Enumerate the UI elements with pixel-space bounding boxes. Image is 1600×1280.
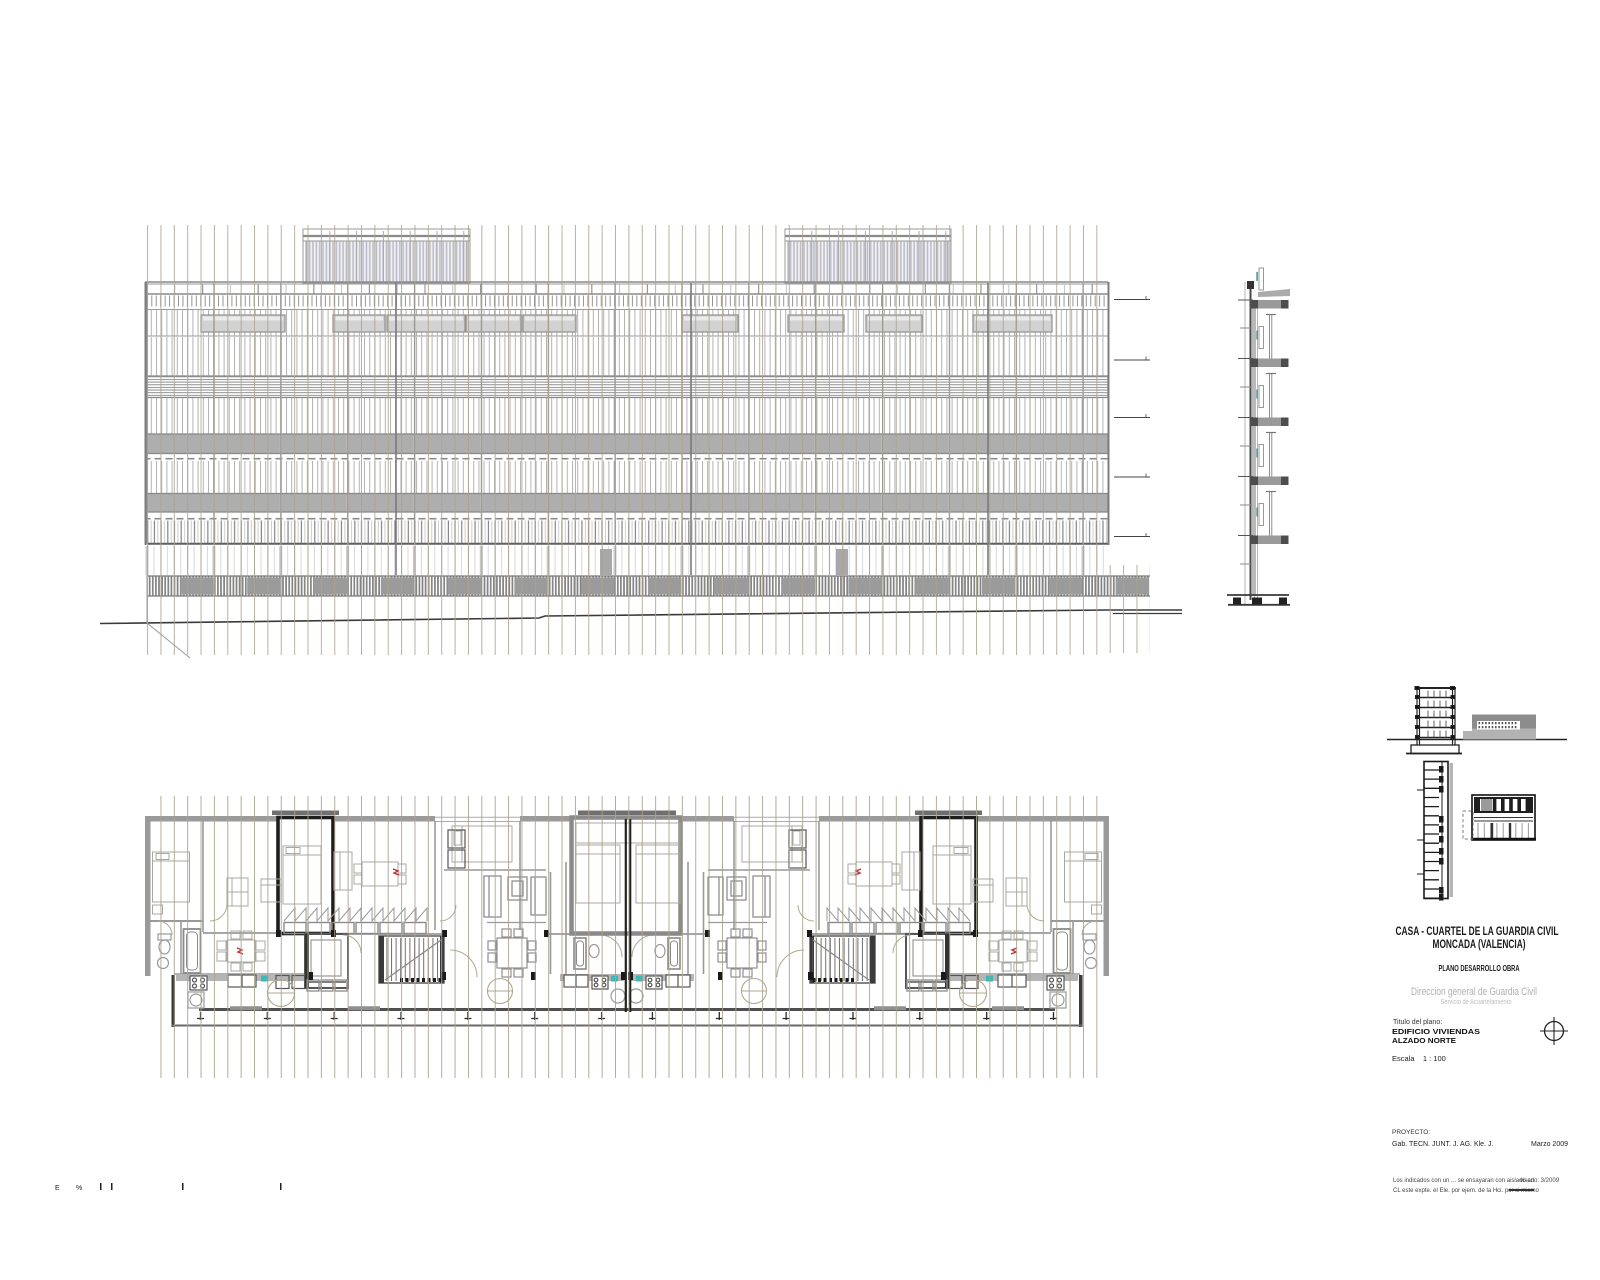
svg-text:EDIFICIO VIVIENDAS: EDIFICIO VIVIENDAS [1392, 1027, 1480, 1036]
svg-text:Escala 1 : 100: Escala 1 : 100 [1392, 1054, 1446, 1063]
svg-text:PLANO DESARROLLO OBRA: PLANO DESARROLLO OBRA [1439, 964, 1520, 973]
svg-text:CASA - CUARTEL DE LA GUARDIA C: CASA - CUARTEL DE LA GUARDIA CIVIL [1396, 924, 1559, 938]
svg-text:Marzo 2009: Marzo 2009 [1531, 1141, 1568, 1148]
svg-text:MONCADA (VALENCIA): MONCADA (VALENCIA) [1433, 939, 1526, 951]
svg-text:Titulo del plano:: Titulo del plano: [1393, 1019, 1442, 1026]
svg-text:Los indicados con un ... se en: Los indicados con un ... se ensayaran co… [1393, 1178, 1534, 1184]
svg-text:PROYECTO:: PROYECTO: [1392, 1129, 1430, 1136]
svg-text:Servicio de Acuartelamiento: Servicio de Acuartelamiento [1441, 997, 1512, 1006]
svg-text:visado: 3/2009: visado: 3/2009 [1520, 1178, 1560, 1184]
svg-text:E: E [55, 1185, 60, 1192]
svg-text:%: % [76, 1185, 82, 1192]
svg-text:Gab. TECN. JUNT. J. AG. Kle. J: Gab. TECN. JUNT. J. AG. Kle. J. [1392, 1141, 1493, 1148]
svg-text:ALZADO NORTE: ALZADO NORTE [1392, 1036, 1456, 1045]
